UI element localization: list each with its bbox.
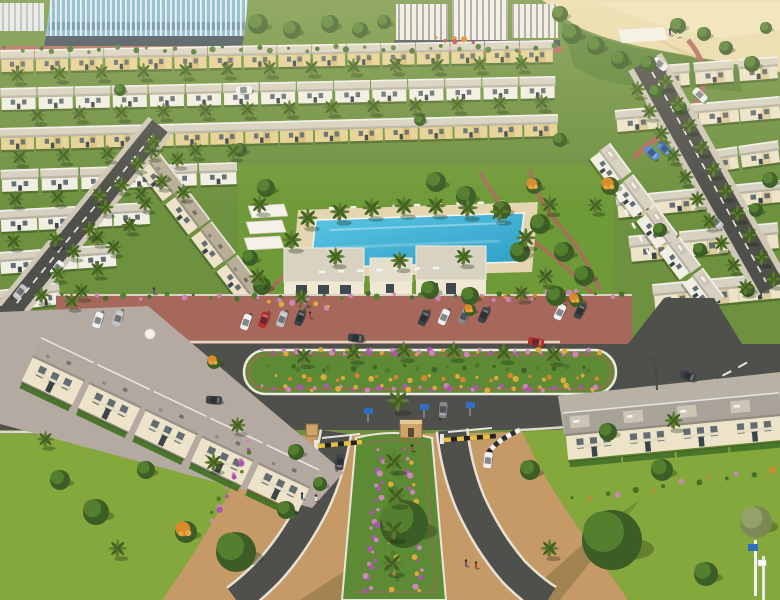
house-unit (416, 42, 450, 67)
house-unit (279, 120, 315, 145)
house-unit (693, 60, 735, 87)
sun-lounger (376, 269, 382, 272)
house-unit (149, 84, 186, 109)
sun-lounger (350, 206, 356, 209)
house-unit (334, 80, 371, 105)
house-unit (104, 48, 138, 73)
sun-lounger (357, 269, 363, 272)
house-unit (37, 86, 74, 111)
scene-svg (0, 0, 780, 600)
house-unit (408, 78, 445, 103)
house-unit (670, 397, 731, 457)
pool-annex (370, 258, 412, 294)
house-unit (0, 169, 39, 195)
house-unit (0, 208, 39, 234)
house-unit (314, 119, 350, 144)
house-unit (348, 118, 384, 143)
house-unit (69, 125, 105, 150)
house-unit (723, 392, 780, 452)
sun-lounger (414, 267, 420, 270)
house-unit (616, 402, 677, 462)
sun-lounger (433, 267, 439, 270)
sun-lounger (338, 270, 344, 273)
aerial-community-render (0, 0, 780, 600)
house-unit (523, 114, 559, 139)
sun-lounger (414, 204, 420, 207)
house-unit (488, 115, 524, 140)
house-unit (40, 167, 79, 193)
house-unit (174, 123, 210, 148)
glass-building (44, 0, 248, 46)
patio-umbrella (145, 329, 155, 339)
house-unit (223, 82, 260, 107)
house-unit (371, 79, 408, 104)
house-unit (173, 46, 207, 71)
house-unit (260, 82, 297, 107)
house-unit (0, 127, 35, 152)
sun-lounger (319, 271, 325, 274)
house-unit (453, 116, 489, 141)
house-unit (244, 121, 280, 146)
house-unit (738, 96, 780, 124)
house-unit (277, 44, 311, 69)
sun-lounger (478, 201, 484, 204)
house-unit (383, 117, 419, 142)
gate-pillar (306, 424, 318, 436)
house-unit (0, 87, 37, 112)
house-unit (35, 126, 71, 151)
house-unit (697, 100, 741, 128)
house-unit (199, 162, 238, 188)
house-unit (186, 83, 223, 108)
house-unit (485, 41, 519, 66)
